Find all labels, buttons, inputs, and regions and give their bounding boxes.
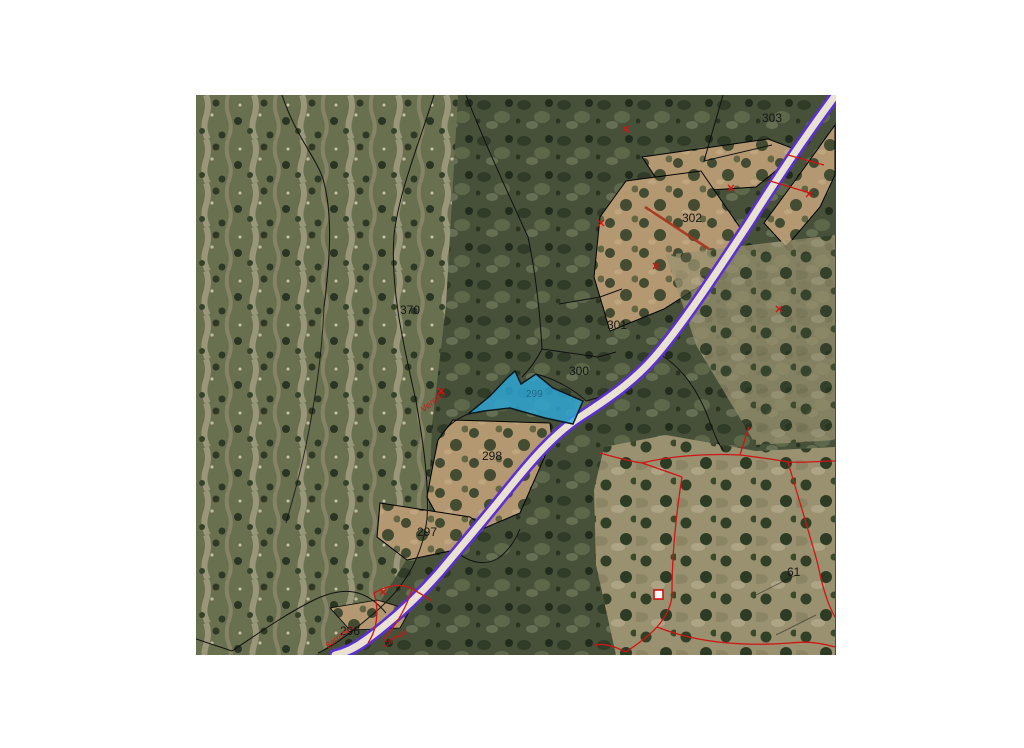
parcel-label-298: 298: [482, 449, 502, 463]
map-canvas: 370 303 302 301 300 299 298 297 296 61 V…: [196, 95, 836, 655]
parcel-label-300: 300: [569, 364, 589, 378]
page-background: 370 303 302 301 300 299 298 297 296 61 V…: [0, 0, 1024, 748]
olive-grove-61: [594, 435, 835, 655]
parcel-label-370: 370: [400, 303, 420, 317]
parcel-label-297: 297: [417, 525, 437, 539]
parcel-label-299: 299: [526, 389, 543, 400]
parcel-label-303: 303: [762, 111, 782, 125]
parcel-label-301: 301: [607, 318, 627, 332]
building-icon: [654, 590, 663, 599]
parcel-label-61: 61: [787, 565, 801, 579]
cadastral-map[interactable]: 370 303 302 301 300 299 298 297 296 61 V…: [196, 95, 836, 655]
parcel-label-302: 302: [682, 211, 702, 225]
